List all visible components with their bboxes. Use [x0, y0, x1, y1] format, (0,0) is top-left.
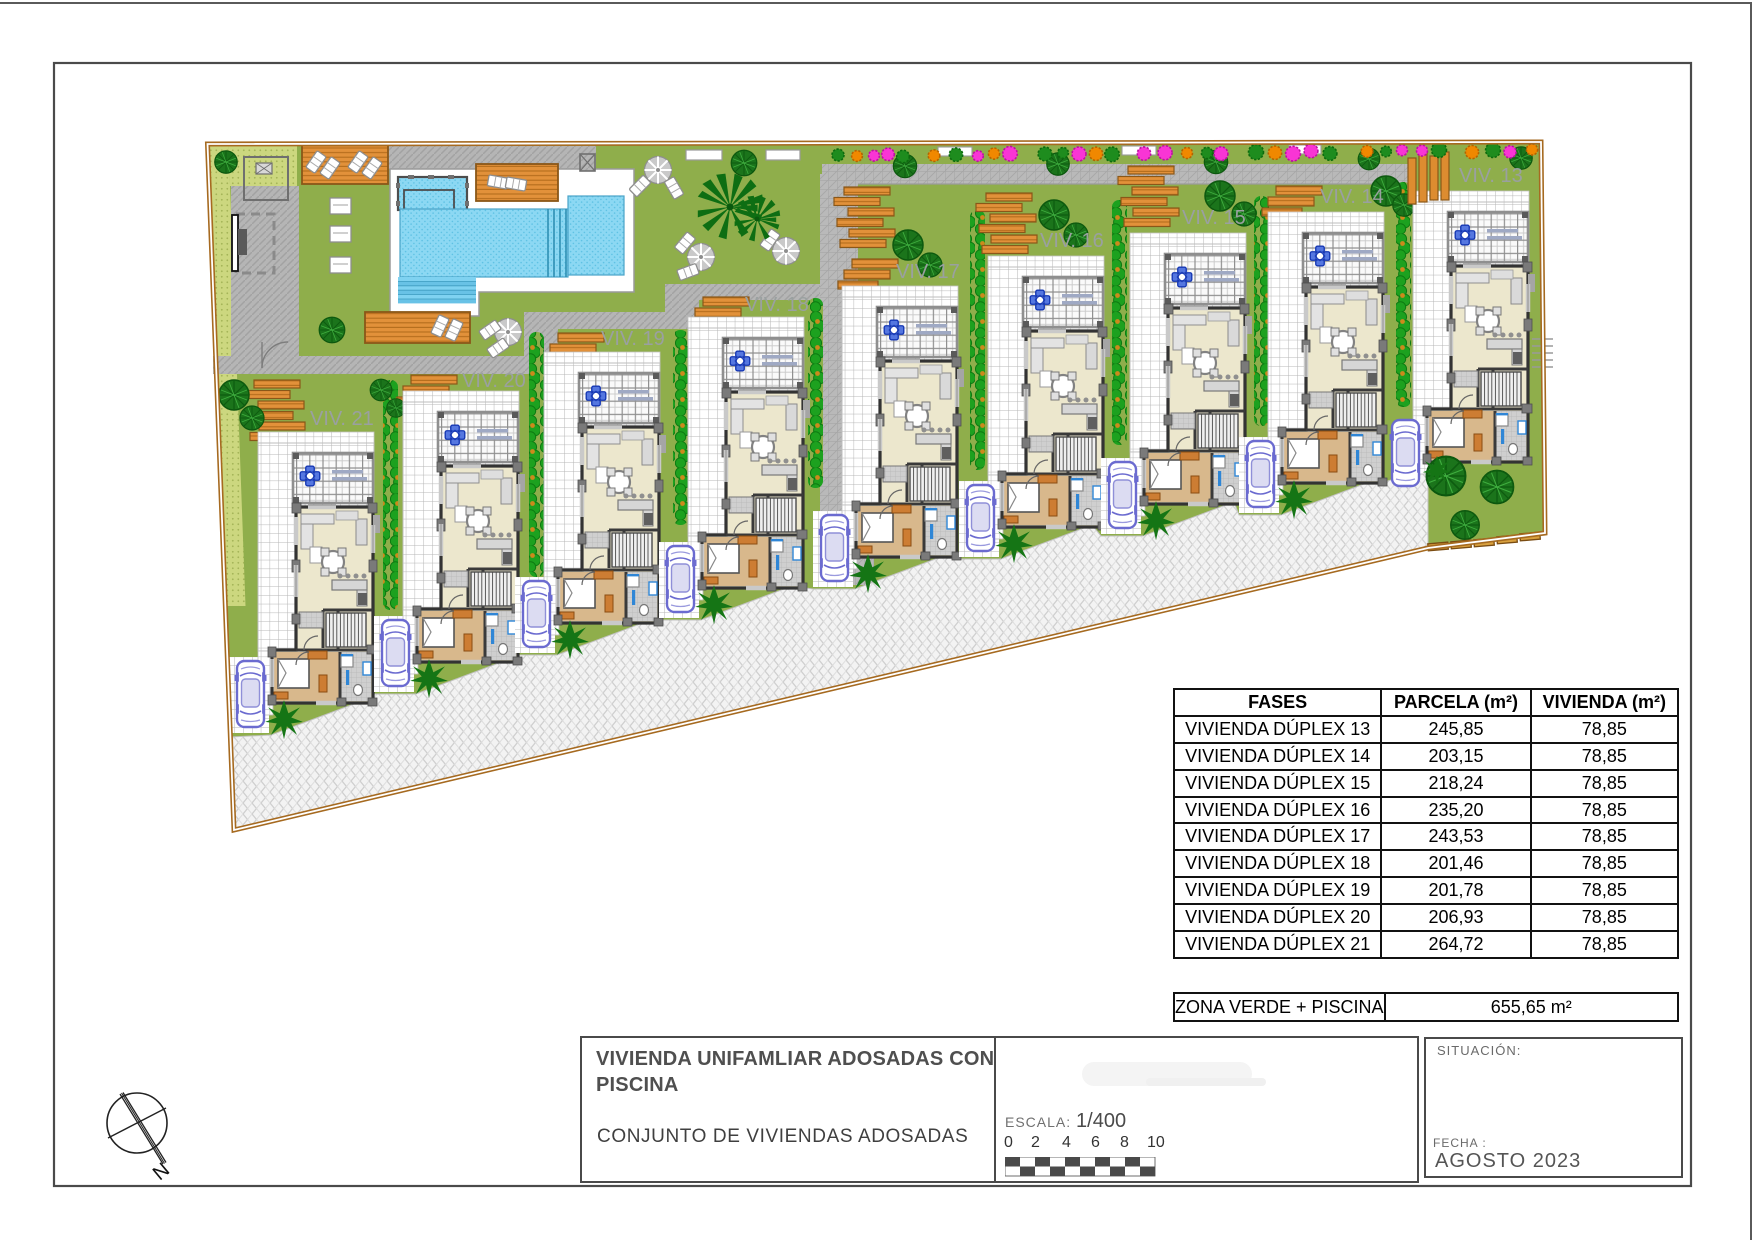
svg-text:VIV. 19: VIV. 19 [601, 328, 665, 350]
svg-text:VIV. 13: VIV. 13 [1459, 165, 1523, 187]
svg-text:VIV. 17: VIV. 17 [896, 261, 960, 283]
svg-text:VIV. 15: VIV. 15 [1182, 207, 1246, 229]
svg-text:VIV. 14: VIV. 14 [1320, 186, 1384, 208]
svg-text:VIV. 18: VIV. 18 [745, 294, 809, 316]
svg-text:N: N [149, 1159, 174, 1185]
svg-text:VIV. 20: VIV. 20 [462, 370, 526, 392]
svg-text:VIV. 21: VIV. 21 [310, 408, 374, 430]
svg-text:VIV. 16: VIV. 16 [1040, 230, 1104, 252]
